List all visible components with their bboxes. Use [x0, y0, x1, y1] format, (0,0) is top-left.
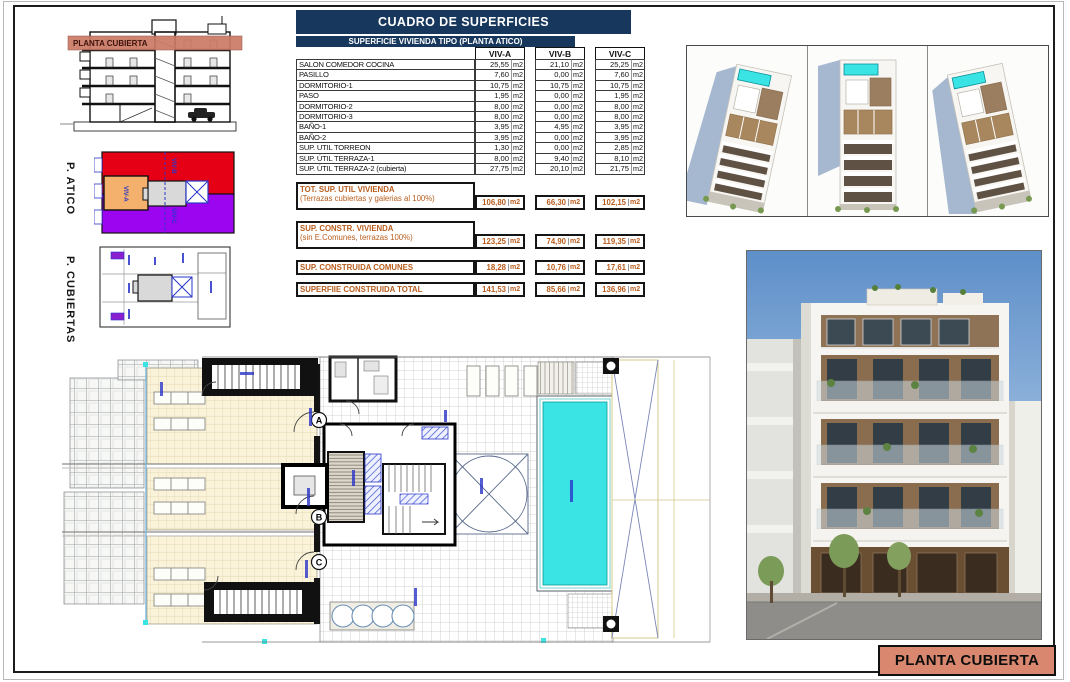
- wood-deck-strip: [538, 362, 574, 394]
- total-value: 123,25m2: [475, 234, 525, 249]
- table-total-row: SUPERFIIE CONSTRUIDA TOTAL 141,53m2 85,6…: [296, 282, 648, 297]
- core-stairwell: [383, 464, 445, 534]
- swimming-pool: [537, 396, 613, 591]
- table-total-row: TOT. SUP. UTIL VIVIENDA(Terrazas cubiert…: [296, 182, 648, 210]
- right-roof-light: [603, 357, 710, 642]
- unit-label: m2: [631, 163, 645, 175]
- roof-tanks: [330, 602, 414, 630]
- total-value: 85,66m2: [535, 282, 585, 297]
- band-label: PLANTA CUBIERTA: [73, 39, 148, 48]
- spacer: [525, 163, 535, 175]
- aerial-render-right: [928, 46, 1048, 216]
- table-total-row: SUP. CONSTR. VIVIENDA(sin E.Comunes, ter…: [296, 221, 648, 249]
- atico-regions: [102, 152, 234, 233]
- stairs-top: [202, 358, 318, 396]
- total-label: SUP. CONSTR. VIVIENDA(sin E.Comunes, ter…: [296, 221, 475, 249]
- total-label: TOT. SUP. UTIL VIVIENDA(Terrazas cubiert…: [296, 182, 475, 210]
- elevator: [283, 465, 327, 507]
- spacer: [585, 163, 595, 175]
- floor-plan: A B C: [62, 352, 712, 648]
- circular-rooflight: [450, 454, 528, 534]
- total-value: 66,30m2: [535, 195, 585, 210]
- total-value: 102,15m2: [595, 195, 645, 210]
- sheet-title-box: PLANTA CUBIERTA: [878, 645, 1056, 676]
- core-lobby: [328, 452, 364, 522]
- value-viv-b: 20,10: [535, 163, 571, 175]
- marker-c: C: [316, 558, 323, 568]
- aerial-render-center: [808, 46, 929, 216]
- table-title: CUADRO DE SUPERFICIES: [296, 10, 631, 34]
- atico-mini-plan: VIV-A VIV-B VIV-C: [94, 150, 238, 236]
- value-viv-a: 27,75: [475, 163, 511, 175]
- sheet-title-text: PLANTA CUBIERTA: [895, 652, 1039, 669]
- cubiertas-core: [133, 275, 192, 301]
- atico-plan-label: P. ATICO: [64, 162, 76, 215]
- unit-label: m2: [511, 163, 525, 175]
- marker-a: A: [316, 416, 323, 426]
- table-subtitle: SUPERFICIE VIVIENDA TIPO (PLANTA ATICO): [296, 36, 575, 47]
- surfaces-table: CUADRO DE SUPERFICIES SUPERFICIE VIVIEND…: [296, 10, 648, 297]
- aerial-renders-box: [686, 45, 1049, 217]
- atico-region-viv-c: VIV-C: [170, 208, 176, 224]
- table-total-row: SUP. CONSTRUIDA COMUNES 18,28m2 10,76m2 …: [296, 260, 648, 275]
- facade-render: [746, 250, 1042, 640]
- surface-totals: TOT. SUP. UTIL VIVIENDA(Terrazas cubiert…: [296, 182, 648, 297]
- cubiertas-plan-label: P. CUBIERTAS: [64, 256, 76, 343]
- stairs-bottom: [204, 576, 320, 622]
- total-label: SUP. CONSTRUIDA COMUNES: [296, 260, 475, 275]
- total-value: 74,90m2: [535, 234, 585, 249]
- total-value: 106,80m2: [475, 195, 525, 210]
- planta-cubierta-band: PLANTA CUBIERTA: [68, 36, 242, 50]
- unit-label: m2: [571, 163, 585, 175]
- atico-left-tags: [94, 158, 102, 224]
- total-value: 141,53m2: [475, 282, 525, 297]
- total-value: 17,61m2: [595, 260, 645, 275]
- total-value: 10,76m2: [535, 260, 585, 275]
- total-value: 136,96m2: [595, 282, 645, 297]
- cubiertas-mini-plan: [94, 243, 238, 333]
- elevation-building: [60, 16, 236, 131]
- section-elevation-drawing: PLANTA CUBIERTA: [60, 12, 250, 146]
- surface-rows: SALON COMEDOR COCINA 25,55m2 21,10m2 25,…: [296, 59, 648, 174]
- total-value: 119,35m2: [595, 234, 645, 249]
- total-value: 18,28m2: [475, 260, 525, 275]
- atico-region-viv-b: VIV-B: [170, 158, 176, 174]
- table-row: SUP. ÚTIL TERRAZA-2 (cubierta) 27,75m2 2…: [296, 163, 648, 174]
- value-viv-c: 21,75: [595, 163, 631, 175]
- section-elevation: PLANTA CUBIERTA: [60, 12, 250, 146]
- marker-b: B: [316, 513, 323, 523]
- floor-plan-drawing: A B C: [62, 352, 712, 648]
- atico-region-viv-a: VIV-A: [122, 186, 128, 202]
- total-label: SUPERFIIE CONSTRUIDA TOTAL: [296, 282, 475, 297]
- aerial-render-left: [687, 46, 808, 216]
- row-label: SUP. ÚTIL TERRAZA-2 (cubierta): [296, 163, 475, 175]
